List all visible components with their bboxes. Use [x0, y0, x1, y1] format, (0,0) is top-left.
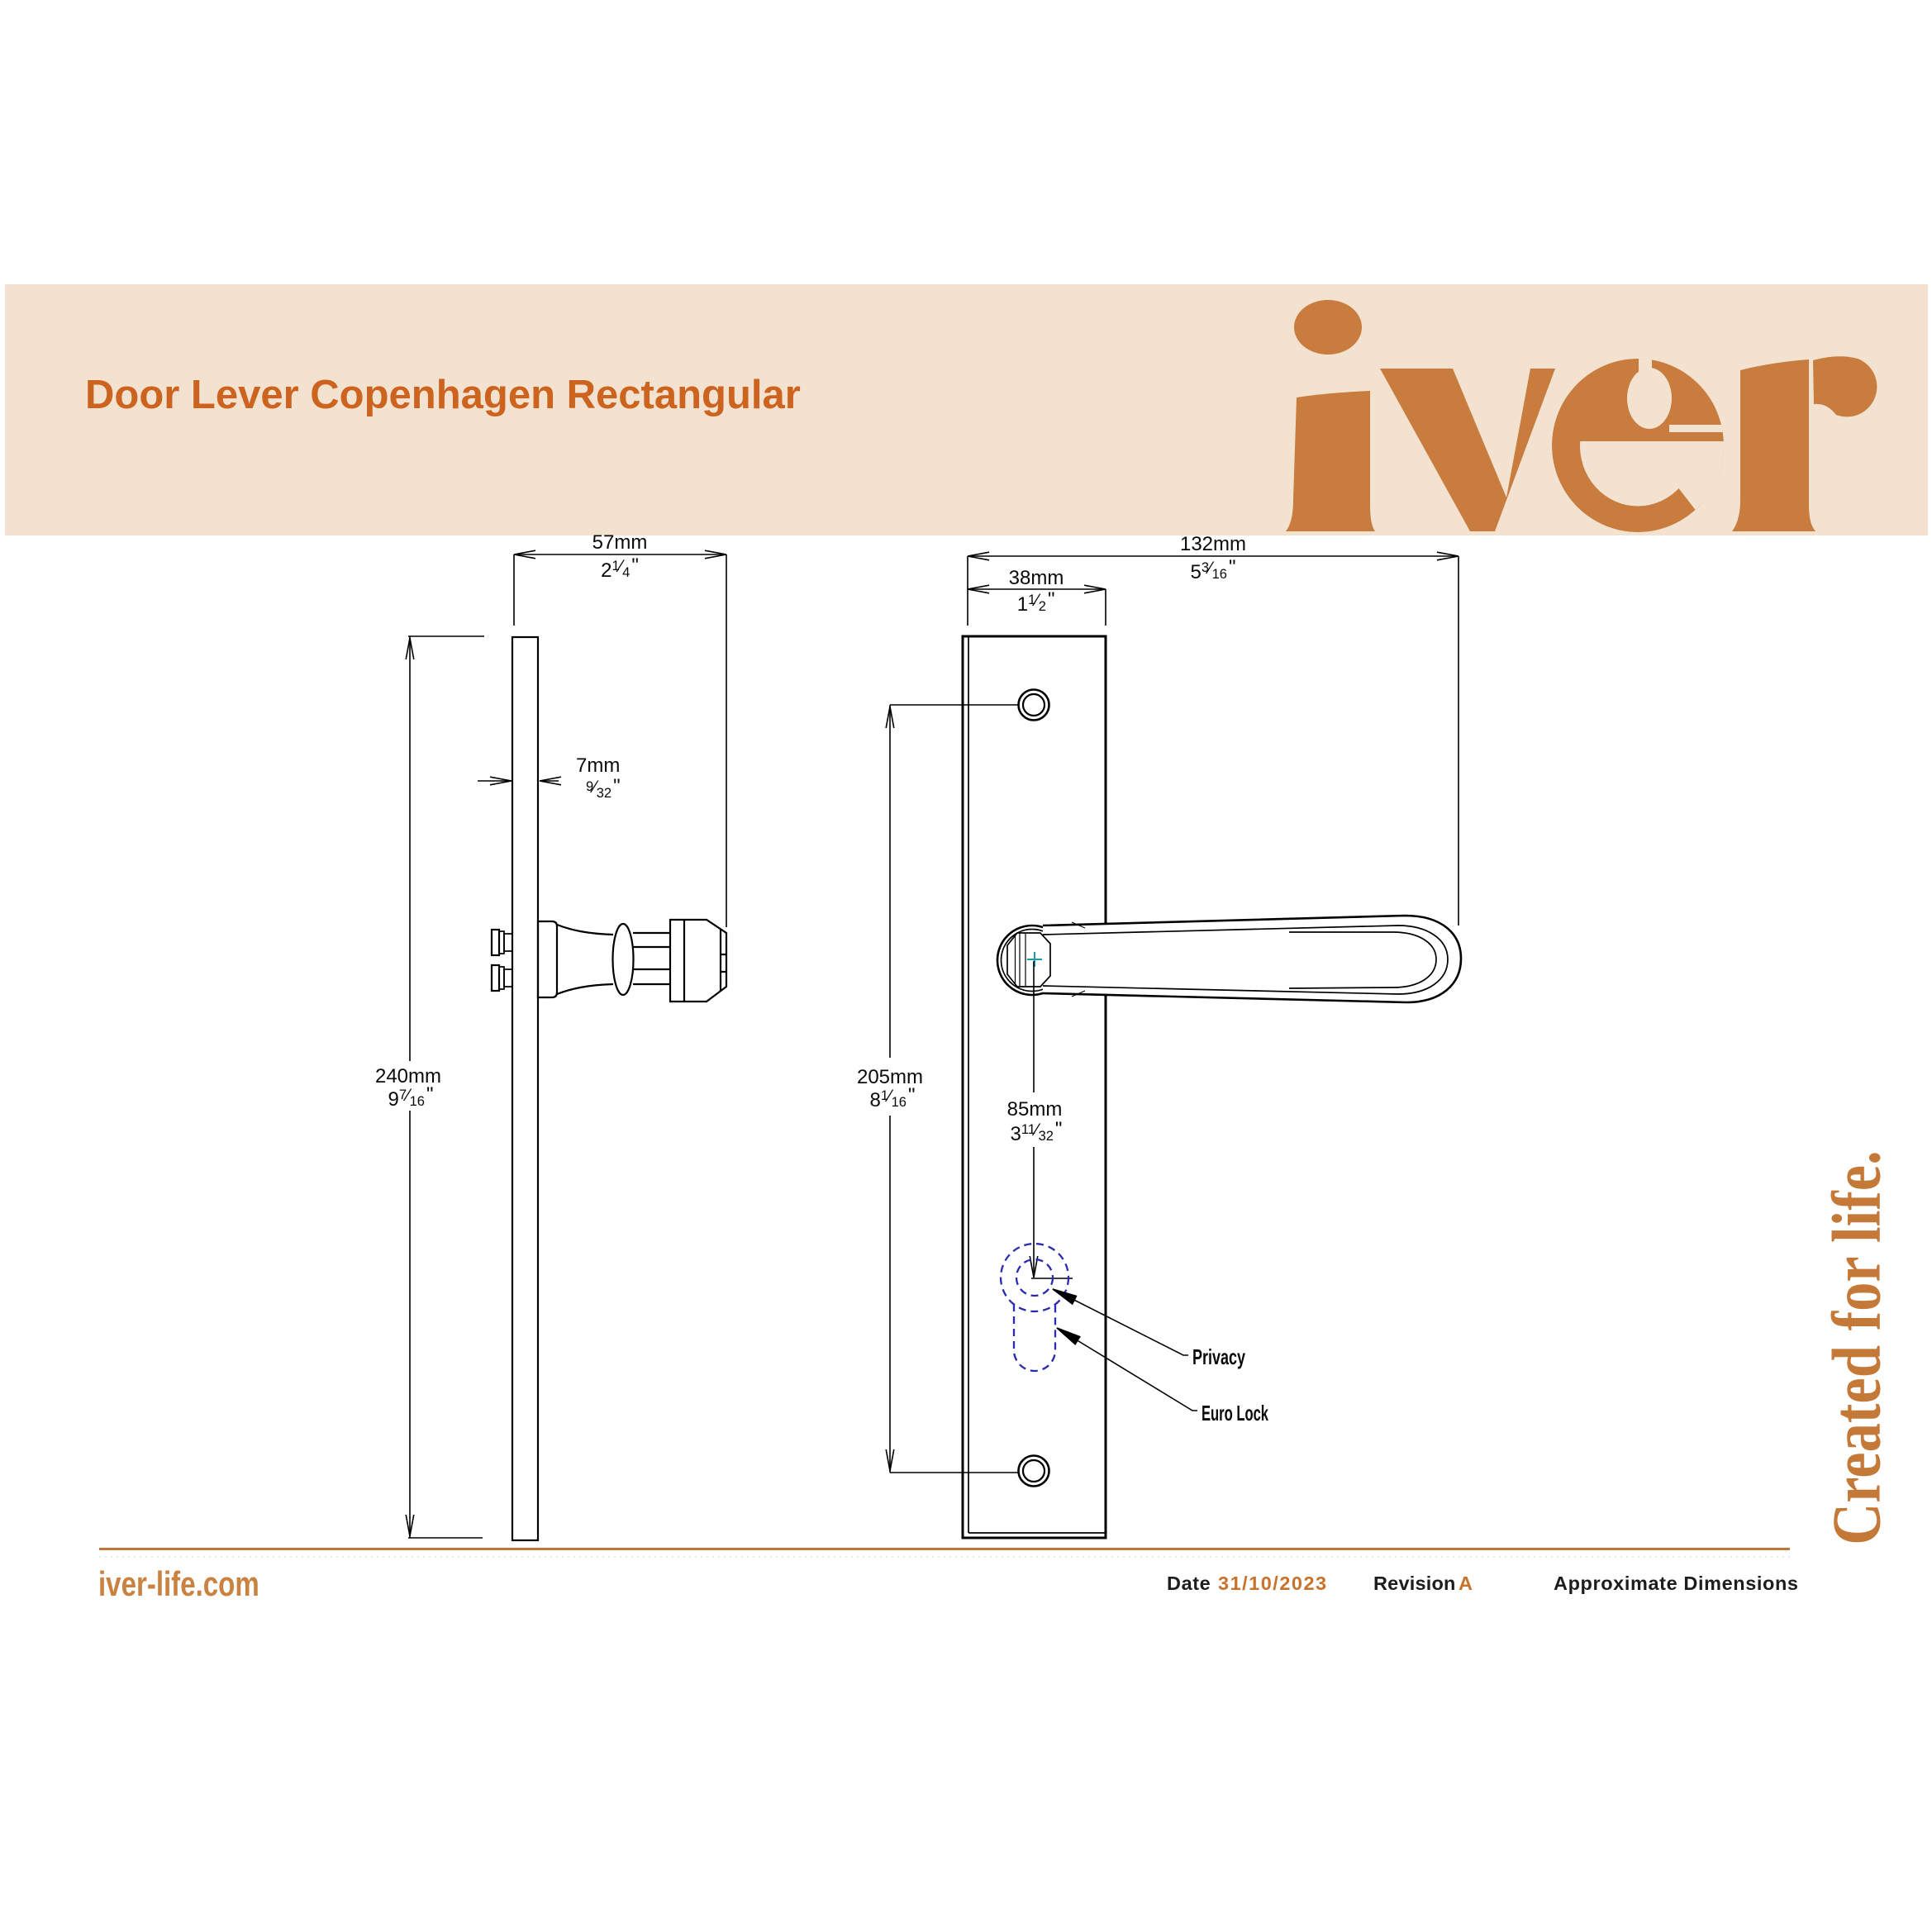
- svg-text:7mm: 7mm: [576, 754, 620, 777]
- svg-text:38mm: 38mm: [1009, 567, 1064, 589]
- svg-text:85mm: 85mm: [1007, 1098, 1063, 1121]
- svg-text:Euro Lock: Euro Lock: [1202, 1401, 1268, 1425]
- svg-text:57mm: 57mm: [592, 531, 648, 554]
- svg-text:9⁄32 ": 9⁄32 ": [586, 775, 621, 801]
- svg-text:311⁄32 ": 311⁄32 ": [1011, 1118, 1063, 1145]
- svg-text:53⁄16 ": 53⁄16 ": [1191, 556, 1236, 583]
- svg-text:21⁄4 ": 21⁄4 ": [601, 554, 639, 582]
- svg-text:132mm: 132mm: [1180, 533, 1246, 555]
- svg-text:Privacy: Privacy: [1192, 1344, 1245, 1369]
- svg-text:11⁄2 ": 11⁄2 ": [1017, 588, 1059, 616]
